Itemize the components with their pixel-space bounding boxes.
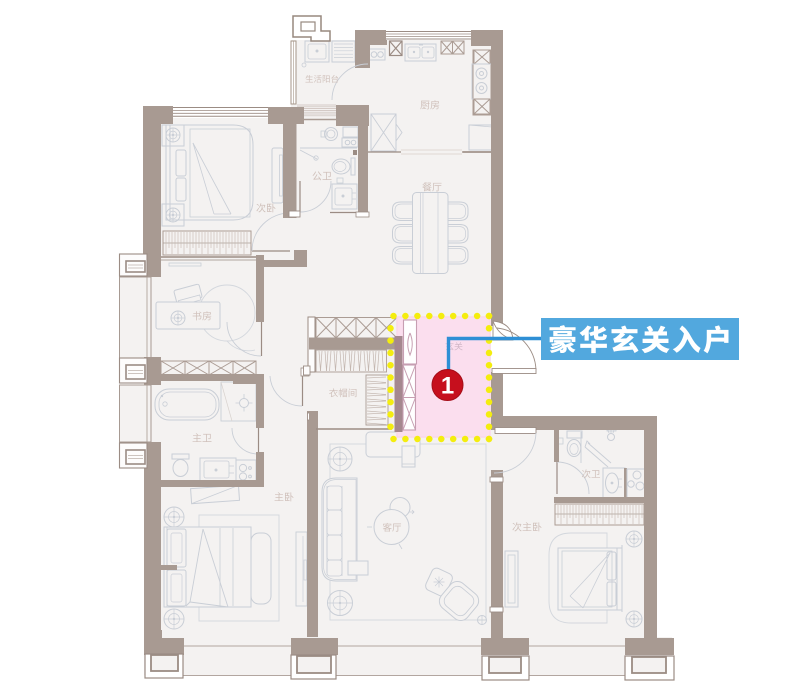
svg-text:1: 1 <box>441 373 454 400</box>
